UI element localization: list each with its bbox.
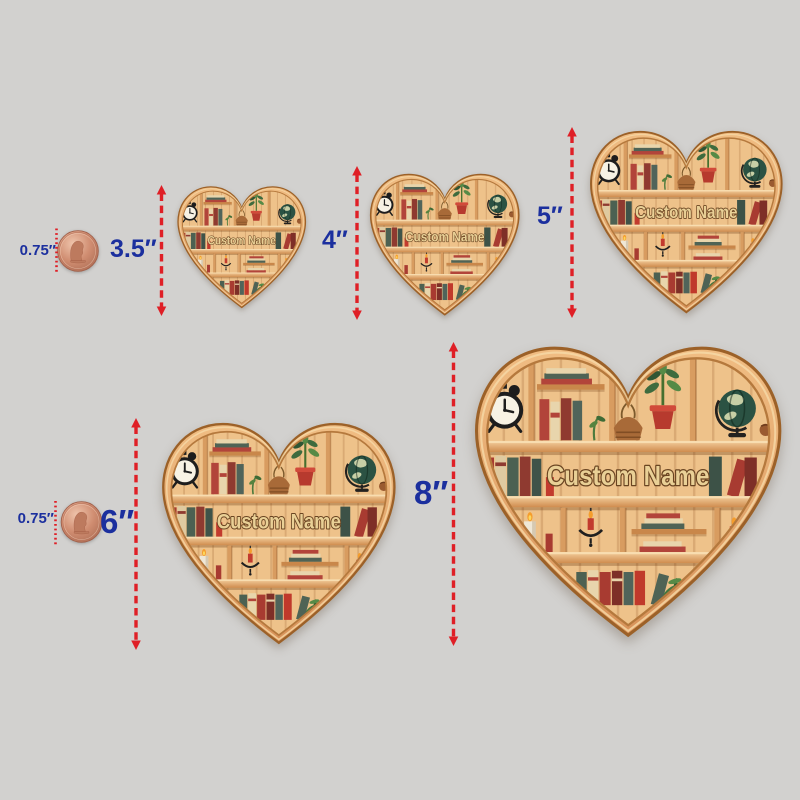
heart-ornament-3-5in xyxy=(174,183,309,312)
height-arrow-8in xyxy=(449,342,459,646)
height-arrow-5in xyxy=(567,127,577,318)
height-arrow-3-5in xyxy=(157,185,167,316)
size-label-3-5in: 3.5″ xyxy=(110,237,157,262)
penny-coin-bottom xyxy=(61,502,102,543)
penny-size-label-bottom: 0.75″ xyxy=(10,511,54,526)
penny-coin-top xyxy=(58,231,99,272)
height-arrow-4in xyxy=(352,166,362,320)
size-label-6in: 6″ xyxy=(100,505,134,538)
size-chart-image: Custom Name xyxy=(0,0,800,800)
size-label-8in: 8″ xyxy=(414,476,448,509)
heart-ornament-8in xyxy=(467,339,789,646)
heart-ornament-6in xyxy=(156,417,402,651)
size-chart-artwork: Custom Name xyxy=(0,0,800,800)
heart-ornament-4in xyxy=(366,170,524,320)
heart-ornament-5in xyxy=(585,126,788,319)
size-label-5in: 5″ xyxy=(537,204,563,229)
penny-size-label-top: 0.75″ xyxy=(12,243,56,258)
size-label-4in: 4″ xyxy=(322,228,348,253)
